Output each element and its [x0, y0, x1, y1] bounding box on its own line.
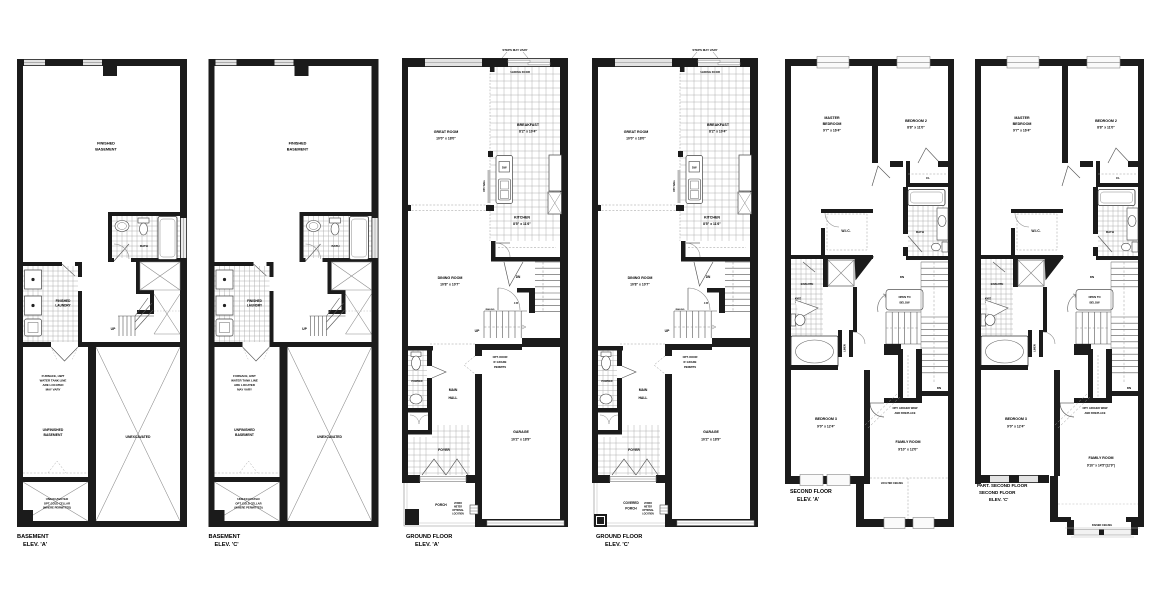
svg-text:ENSUITE: ENSUITE: [991, 282, 1004, 286]
svg-text:9'0" x 12'4": 9'0" x 12'4": [1007, 425, 1025, 429]
svg-text:OPT. WALL: OPT. WALL: [673, 179, 676, 192]
svg-text:RAILING: RAILING: [676, 308, 685, 311]
svg-text:GREAT ROOM: GREAT ROOM: [434, 130, 459, 134]
svg-text:FURNACE, HWT: FURNACE, HWT: [42, 374, 65, 378]
svg-text:AND FIREPLACE: AND FIREPLACE: [894, 411, 915, 415]
svg-text:BATH: BATH: [332, 244, 340, 248]
svg-text:LINEN: LINEN: [844, 344, 847, 352]
svg-text:4 R: 4 R: [704, 301, 708, 305]
svg-text:ARE LOCATED: ARE LOCATED: [43, 383, 64, 387]
svg-text:9'0" x 12'4": 9'0" x 12'4": [817, 425, 835, 429]
svg-text:ELEV. 'A': ELEV. 'A': [415, 542, 440, 548]
svg-text:COVERED: COVERED: [623, 501, 639, 505]
svg-text:OPT. DOOR: OPT. DOOR: [683, 355, 698, 359]
svg-text:DW: DW: [692, 165, 697, 169]
svg-text:OPT. ARCHED WDW: OPT. ARCHED WDW: [1083, 406, 1109, 410]
svg-text:LOCATION: LOCATION: [642, 513, 654, 516]
svg-text:GARAGE: GARAGE: [703, 430, 719, 434]
svg-text:CL: CL: [926, 176, 930, 180]
svg-text:POWDER: POWDER: [601, 380, 612, 383]
svg-text:METER: METER: [454, 507, 462, 509]
svg-text:BEDROOM 2: BEDROOM 2: [905, 119, 927, 123]
svg-text:UNFINISHED: UNFINISHED: [234, 428, 255, 432]
svg-text:PERMITS: PERMITS: [494, 365, 506, 369]
svg-text:MAIN: MAIN: [639, 388, 648, 392]
svg-text:METER: METER: [644, 507, 652, 509]
svg-text:ELEV. 'C': ELEV. 'C': [215, 542, 240, 548]
svg-text:OPT. COLD CELLAR: OPT. COLD CELLAR: [44, 502, 70, 506]
svg-text:RAILING: RAILING: [486, 308, 495, 311]
svg-text:ELEV. 'A': ELEV. 'A': [797, 497, 819, 503]
svg-text:STEPS MAY VARY: STEPS MAY VARY: [692, 48, 717, 52]
svg-text:AND FIREPLACE: AND FIREPLACE: [1084, 411, 1105, 415]
svg-text:SECOND FLOOR: SECOND FLOOR: [979, 490, 1016, 495]
svg-text:DINING ROOM: DINING ROOM: [628, 276, 653, 280]
svg-text:DN: DN: [1090, 275, 1094, 279]
svg-text:FINISHED: FINISHED: [56, 299, 71, 303]
svg-text:MAIN: MAIN: [449, 388, 458, 392]
svg-text:SECOND FLOOR: SECOND FLOOR: [790, 489, 832, 495]
svg-text:BASEMENT: BASEMENT: [235, 433, 255, 437]
svg-text:UNEXCAVATED: UNEXCAVATED: [46, 497, 69, 501]
svg-text:DN: DN: [1127, 386, 1131, 390]
svg-text:OPT. DOOR: OPT. DOOR: [493, 355, 508, 359]
svg-text:RAISED CEILING: RAISED CEILING: [1092, 524, 1112, 527]
svg-text:STEPS MAY VARY: STEPS MAY VARY: [502, 48, 527, 52]
svg-text:OPTIONAL: OPTIONAL: [452, 509, 464, 512]
svg-text:FAMILY ROOM: FAMILY ROOM: [1088, 456, 1113, 460]
svg-text:GREAT ROOM: GREAT ROOM: [624, 130, 649, 134]
svg-text:8'5" x 11'6": 8'5" x 11'6": [703, 222, 721, 226]
svg-text:UNEXCAVATED: UNEXCAVATED: [317, 435, 342, 439]
svg-text:OPT. COLD CELLAR: OPT. COLD CELLAR: [235, 502, 261, 506]
svg-text:GROUND FLOOR: GROUND FLOOR: [596, 534, 642, 540]
svg-text:10'2" x 18'9": 10'2" x 18'9": [701, 438, 721, 442]
svg-text:ARE LOCATED: ARE LOCATED: [234, 383, 255, 387]
svg-text:OPEN TO: OPEN TO: [1088, 295, 1100, 299]
svg-text:LINEN: LINEN: [1034, 344, 1037, 352]
svg-text:8'8" x 11'0": 8'8" x 11'0": [907, 126, 925, 130]
svg-text:BASEMENT: BASEMENT: [44, 433, 64, 437]
svg-text:GARAGE: GARAGE: [513, 430, 529, 434]
svg-text:8'8" x 11'0": 8'8" x 11'0": [1097, 126, 1115, 130]
svg-text:UP: UP: [475, 329, 480, 333]
svg-text:10'0" x 18'0": 10'0" x 18'0": [626, 137, 646, 141]
svg-text:UNEXCAVATED: UNEXCAVATED: [237, 497, 260, 501]
svg-text:9'7" x 16'4": 9'7" x 16'4": [1013, 129, 1031, 133]
svg-text:PORCH: PORCH: [435, 503, 447, 507]
svg-text:W.I.C.: W.I.C.: [1031, 229, 1040, 233]
svg-text:10'8" x 10'7": 10'8" x 10'7": [440, 283, 460, 287]
svg-text:ENSUITE: ENSUITE: [801, 282, 814, 286]
svg-text:ELEV. 'A': ELEV. 'A': [23, 542, 48, 548]
svg-text:WATER TANK LINE: WATER TANK LINE: [231, 379, 258, 383]
svg-text:FOYER: FOYER: [438, 448, 450, 452]
svg-text:BATH: BATH: [1106, 230, 1114, 234]
svg-text:FURNACE, HWT: FURNACE, HWT: [233, 374, 256, 378]
svg-text:LAUNDRY: LAUNDRY: [247, 304, 263, 308]
svg-text:8'5" x 11'6": 8'5" x 11'6": [513, 222, 531, 226]
svg-text:ELEV. 'C': ELEV. 'C': [605, 542, 630, 548]
svg-text:HALL: HALL: [639, 396, 648, 400]
svg-text:FINISHED: FINISHED: [247, 299, 262, 303]
svg-text:BELOW: BELOW: [899, 301, 910, 305]
svg-text:DN: DN: [900, 275, 904, 279]
svg-text:BASEMENT: BASEMENT: [287, 148, 309, 152]
svg-text:BEDROOM 2: BEDROOM 2: [1095, 119, 1117, 123]
svg-text:BEDROOM: BEDROOM: [1013, 122, 1032, 126]
svg-text:OPEN TO: OPEN TO: [898, 295, 910, 299]
svg-text:PORCH: PORCH: [625, 507, 637, 511]
svg-text:OPTIONAL: OPTIONAL: [642, 509, 654, 512]
svg-text:KITCHEN: KITCHEN: [514, 216, 530, 220]
svg-text:UP: UP: [665, 329, 670, 333]
svg-text:CL: CL: [1116, 176, 1120, 180]
svg-text:FINISHED: FINISHED: [289, 142, 307, 146]
svg-text:IF GRADE: IF GRADE: [684, 360, 697, 364]
svg-text:4 R: 4 R: [514, 301, 518, 305]
svg-text:GROUND FLOOR: GROUND FLOOR: [406, 534, 452, 540]
svg-text:FOYER: FOYER: [628, 448, 640, 452]
svg-text:W.I.C.: W.I.C.: [841, 229, 850, 233]
svg-text:BELOW: BELOW: [1089, 301, 1100, 305]
svg-text:BEDROOM 3: BEDROOM 3: [1005, 417, 1027, 421]
svg-text:BATH: BATH: [916, 230, 924, 234]
svg-text:KITCHEN: KITCHEN: [704, 216, 720, 220]
svg-text:8'2" x 10'4": 8'2" x 10'4": [519, 130, 537, 134]
svg-text:10'0" x 18'0": 10'0" x 18'0": [436, 137, 456, 141]
svg-text:10'8" x 10'7": 10'8" x 10'7": [630, 283, 650, 287]
svg-text:BASEMENT: BASEMENT: [95, 148, 117, 152]
svg-text:DN: DN: [937, 386, 941, 390]
svg-text:BREAKFAST: BREAKFAST: [707, 123, 730, 127]
svg-text:HYDRO: HYDRO: [454, 503, 462, 505]
svg-text:9'7" x 16'4": 9'7" x 16'4": [823, 129, 841, 133]
svg-text:DN: DN: [706, 275, 711, 279]
svg-text:WATER TANK LINE: WATER TANK LINE: [40, 379, 67, 383]
svg-text:VAULTED CEILING: VAULTED CEILING: [881, 482, 903, 485]
svg-text:(WHERE PERMITTED): (WHERE PERMITTED): [43, 506, 71, 510]
svg-text:IF GRADE: IF GRADE: [494, 360, 507, 364]
svg-text:MASTER: MASTER: [1014, 116, 1030, 120]
svg-text:10'2" x 18'9": 10'2" x 18'9": [511, 438, 531, 442]
svg-text:9'10" x 12'0": 9'10" x 12'0": [898, 448, 918, 452]
svg-text:OPT. WALL: OPT. WALL: [483, 179, 486, 192]
svg-text:HALL: HALL: [449, 396, 458, 400]
svg-text:MAY VARY: MAY VARY: [237, 388, 252, 392]
svg-text:LAUNDRY: LAUNDRY: [55, 304, 71, 308]
svg-text:MAY VARY: MAY VARY: [46, 388, 61, 392]
svg-text:ELEV. 'C': ELEV. 'C': [989, 497, 1008, 502]
svg-text:LOCATION: LOCATION: [452, 513, 464, 516]
svg-text:UP: UP: [302, 327, 307, 331]
svg-text:BATH: BATH: [140, 244, 148, 248]
svg-text:UP: UP: [111, 327, 116, 331]
svg-text:BASEMENT: BASEMENT: [209, 534, 241, 540]
svg-text:MASTER: MASTER: [824, 116, 840, 120]
svg-text:DINING ROOM: DINING ROOM: [438, 276, 463, 280]
svg-text:FINISHED: FINISHED: [97, 142, 115, 146]
svg-text:BASEMENT: BASEMENT: [17, 534, 49, 540]
svg-text:OPT. ARCHED WDW: OPT. ARCHED WDW: [893, 406, 919, 410]
svg-text:(WHERE PERMITTED): (WHERE PERMITTED): [234, 506, 262, 510]
svg-text:PERMITS: PERMITS: [684, 365, 696, 369]
svg-text:PART. SECOND FLOOR: PART. SECOND FLOOR: [977, 483, 1028, 488]
svg-text:BREAKFAST: BREAKFAST: [517, 123, 540, 127]
svg-text:9'10" x 14'5"(12'9"): 9'10" x 14'5"(12'9"): [1087, 464, 1115, 468]
svg-text:DN: DN: [516, 275, 521, 279]
svg-text:UNEXCAVATED: UNEXCAVATED: [126, 435, 151, 439]
svg-text:HYDRO: HYDRO: [644, 503, 652, 505]
svg-text:POWDER: POWDER: [411, 380, 422, 383]
svg-text:BEDROOM: BEDROOM: [823, 122, 842, 126]
svg-text:8'2" x 10'4": 8'2" x 10'4": [709, 130, 727, 134]
svg-text:SLIDING DOOR: SLIDING DOOR: [700, 70, 720, 74]
svg-text:SLIDING DOOR: SLIDING DOOR: [510, 70, 530, 74]
svg-text:BEDROOM 3: BEDROOM 3: [815, 417, 837, 421]
svg-text:FAMILY ROOM: FAMILY ROOM: [895, 440, 920, 444]
svg-text:DW: DW: [502, 165, 507, 169]
svg-text:UNFINISHED: UNFINISHED: [43, 428, 64, 432]
